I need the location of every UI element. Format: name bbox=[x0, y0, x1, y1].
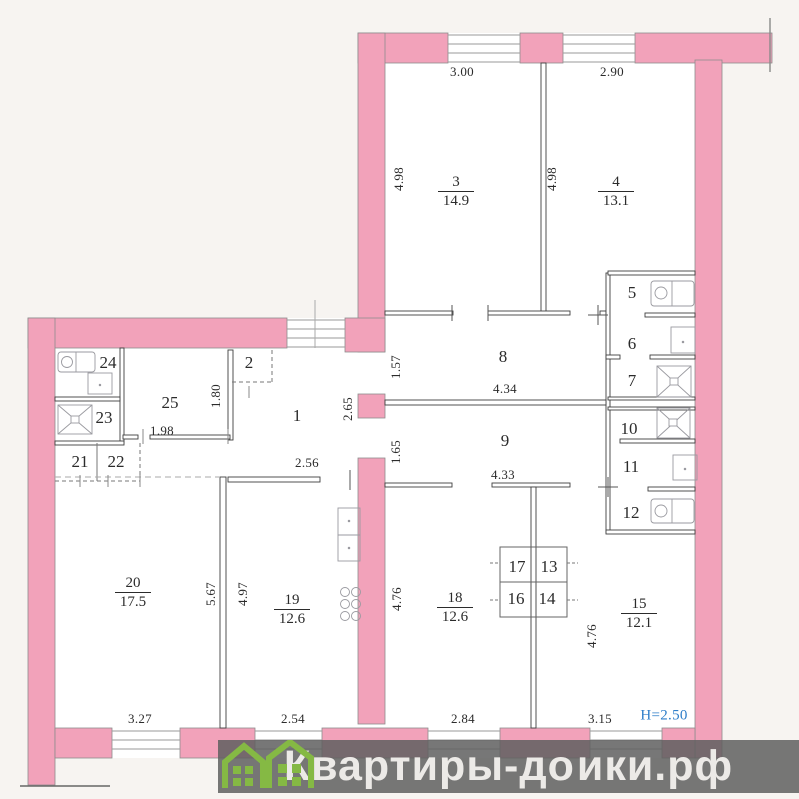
watermark-text-right: ики.рф bbox=[577, 745, 733, 788]
green-houses-icon bbox=[219, 740, 315, 790]
floor-plan: 3.002.904.984.981.574.342.651.654.331.80… bbox=[0, 0, 799, 799]
floor-plan-drawing bbox=[0, 0, 799, 799]
watermark-text-left: Квартиры-до bbox=[284, 745, 575, 788]
watermark: Квартиры-до ики.рф bbox=[218, 740, 799, 793]
